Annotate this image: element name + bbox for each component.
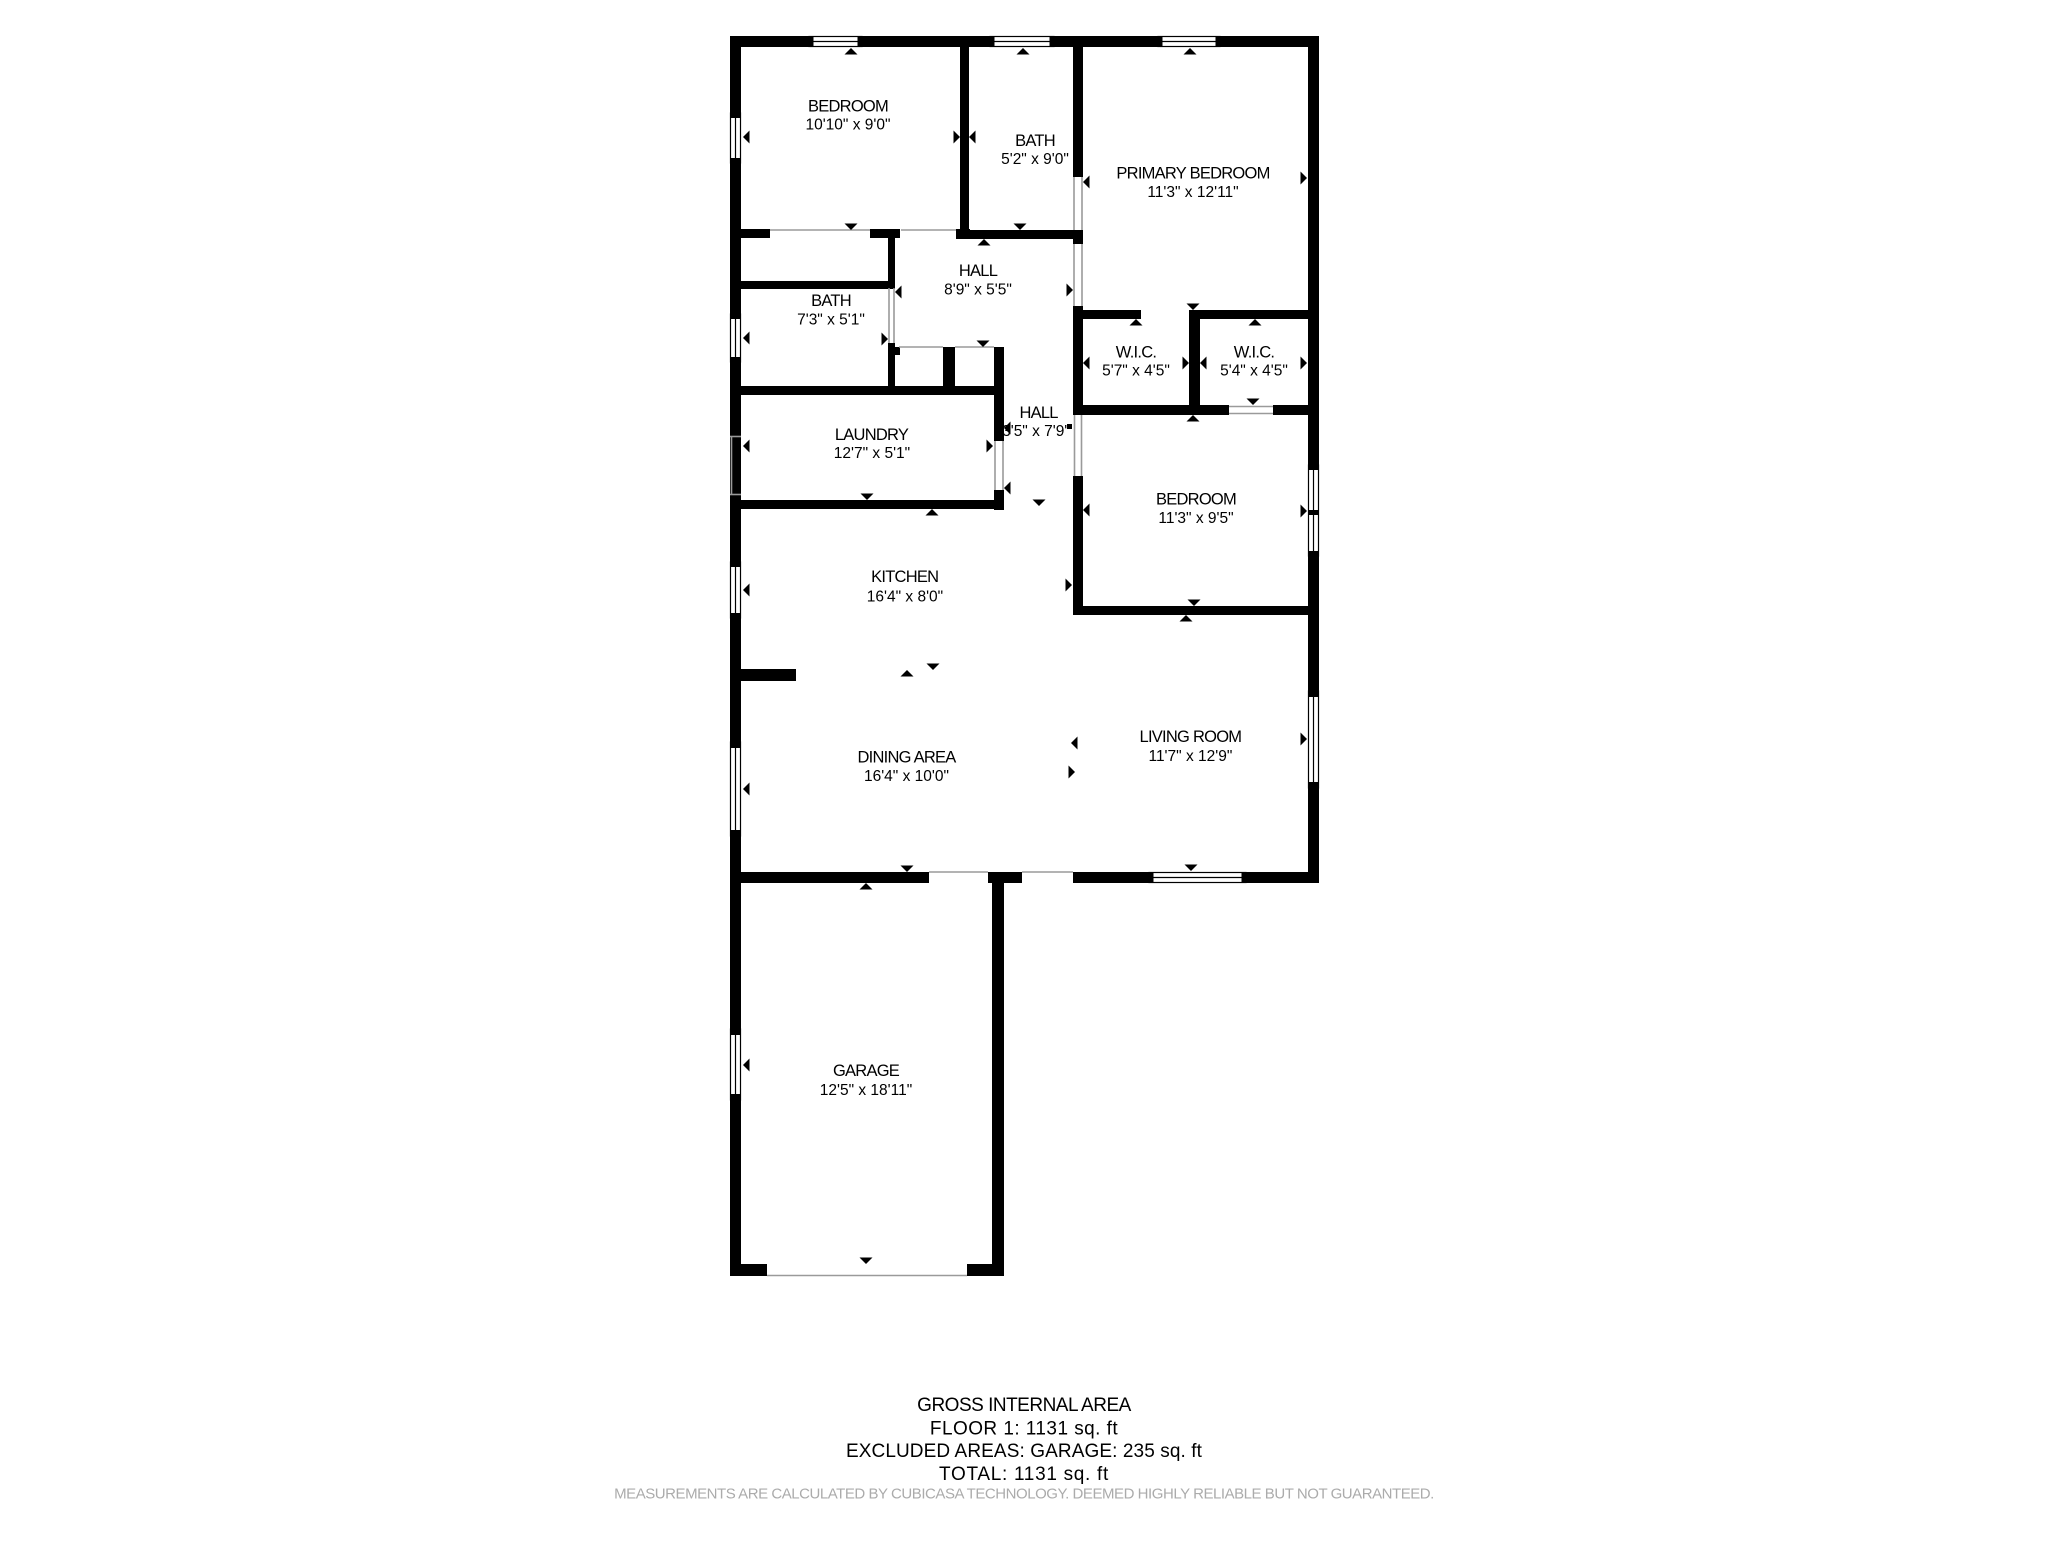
svg-text:PRIMARY BEDROOM: PRIMARY BEDROOM — [1116, 165, 1269, 183]
svg-text:11'3" x 12'11": 11'3" x 12'11" — [1147, 184, 1238, 201]
svg-text:HALL: HALL — [959, 262, 998, 280]
svg-text:LIVING ROOM: LIVING ROOM — [1140, 728, 1242, 746]
svg-text:BEDROOM: BEDROOM — [1156, 491, 1236, 509]
svg-text:7'3" x 5'1": 7'3" x 5'1" — [797, 311, 865, 328]
svg-text:DINING AREA: DINING AREA — [857, 748, 956, 766]
svg-text:16'4" x 10'0": 16'4" x 10'0" — [864, 768, 949, 785]
svg-text:W.I.C.: W.I.C. — [1234, 344, 1275, 362]
svg-text:11'3" x 9'5": 11'3" x 9'5" — [1158, 510, 1233, 527]
svg-text:5'4" x 4'5": 5'4" x 4'5" — [1220, 363, 1288, 380]
svg-text:16'4" x 8'0": 16'4" x 8'0" — [867, 589, 943, 606]
svg-text:FLOOR 1: 1131 sq. ft: FLOOR 1: 1131 sq. ft — [930, 1419, 1118, 1440]
svg-text:W.I.C.: W.I.C. — [1116, 344, 1157, 362]
svg-text:BATH: BATH — [811, 292, 851, 310]
svg-text:10'10" x 9'0": 10'10" x 9'0" — [805, 116, 890, 133]
svg-text:MEASUREMENTS ARE CALCULATED BY: MEASUREMENTS ARE CALCULATED BY CUBICASA … — [614, 1485, 1434, 1502]
svg-text:BEDROOM: BEDROOM — [808, 98, 888, 116]
svg-text:EXCLUDED AREAS: GARAGE: 235 sq: EXCLUDED AREAS: GARAGE: 235 sq. ft — [846, 1441, 1203, 1462]
svg-text:HALL: HALL — [1019, 404, 1058, 422]
svg-text:3'5" x 7'9": 3'5" x 7'9" — [1002, 423, 1070, 440]
svg-text:GARAGE: GARAGE — [833, 1062, 900, 1080]
svg-text:GROSS INTERNAL AREA: GROSS INTERNAL AREA — [917, 1395, 1131, 1416]
svg-text:12'5" x 18'11": 12'5" x 18'11" — [820, 1082, 912, 1099]
svg-text:5'7" x 4'5": 5'7" x 4'5" — [1102, 363, 1170, 380]
svg-text:12'7" x 5'1": 12'7" x 5'1" — [834, 445, 910, 462]
svg-text:8'9" x 5'5": 8'9" x 5'5" — [944, 282, 1012, 299]
svg-text:TOTAL: 1131 sq. ft: TOTAL: 1131 sq. ft — [939, 1464, 1109, 1485]
svg-text:11'7" x 12'9": 11'7" x 12'9" — [1148, 748, 1232, 765]
svg-text:BATH: BATH — [1015, 132, 1055, 150]
svg-text:KITCHEN: KITCHEN — [871, 568, 938, 586]
svg-text:LAUNDRY: LAUNDRY — [835, 426, 909, 444]
svg-text:5'2" x 9'0": 5'2" x 9'0" — [1001, 151, 1069, 168]
